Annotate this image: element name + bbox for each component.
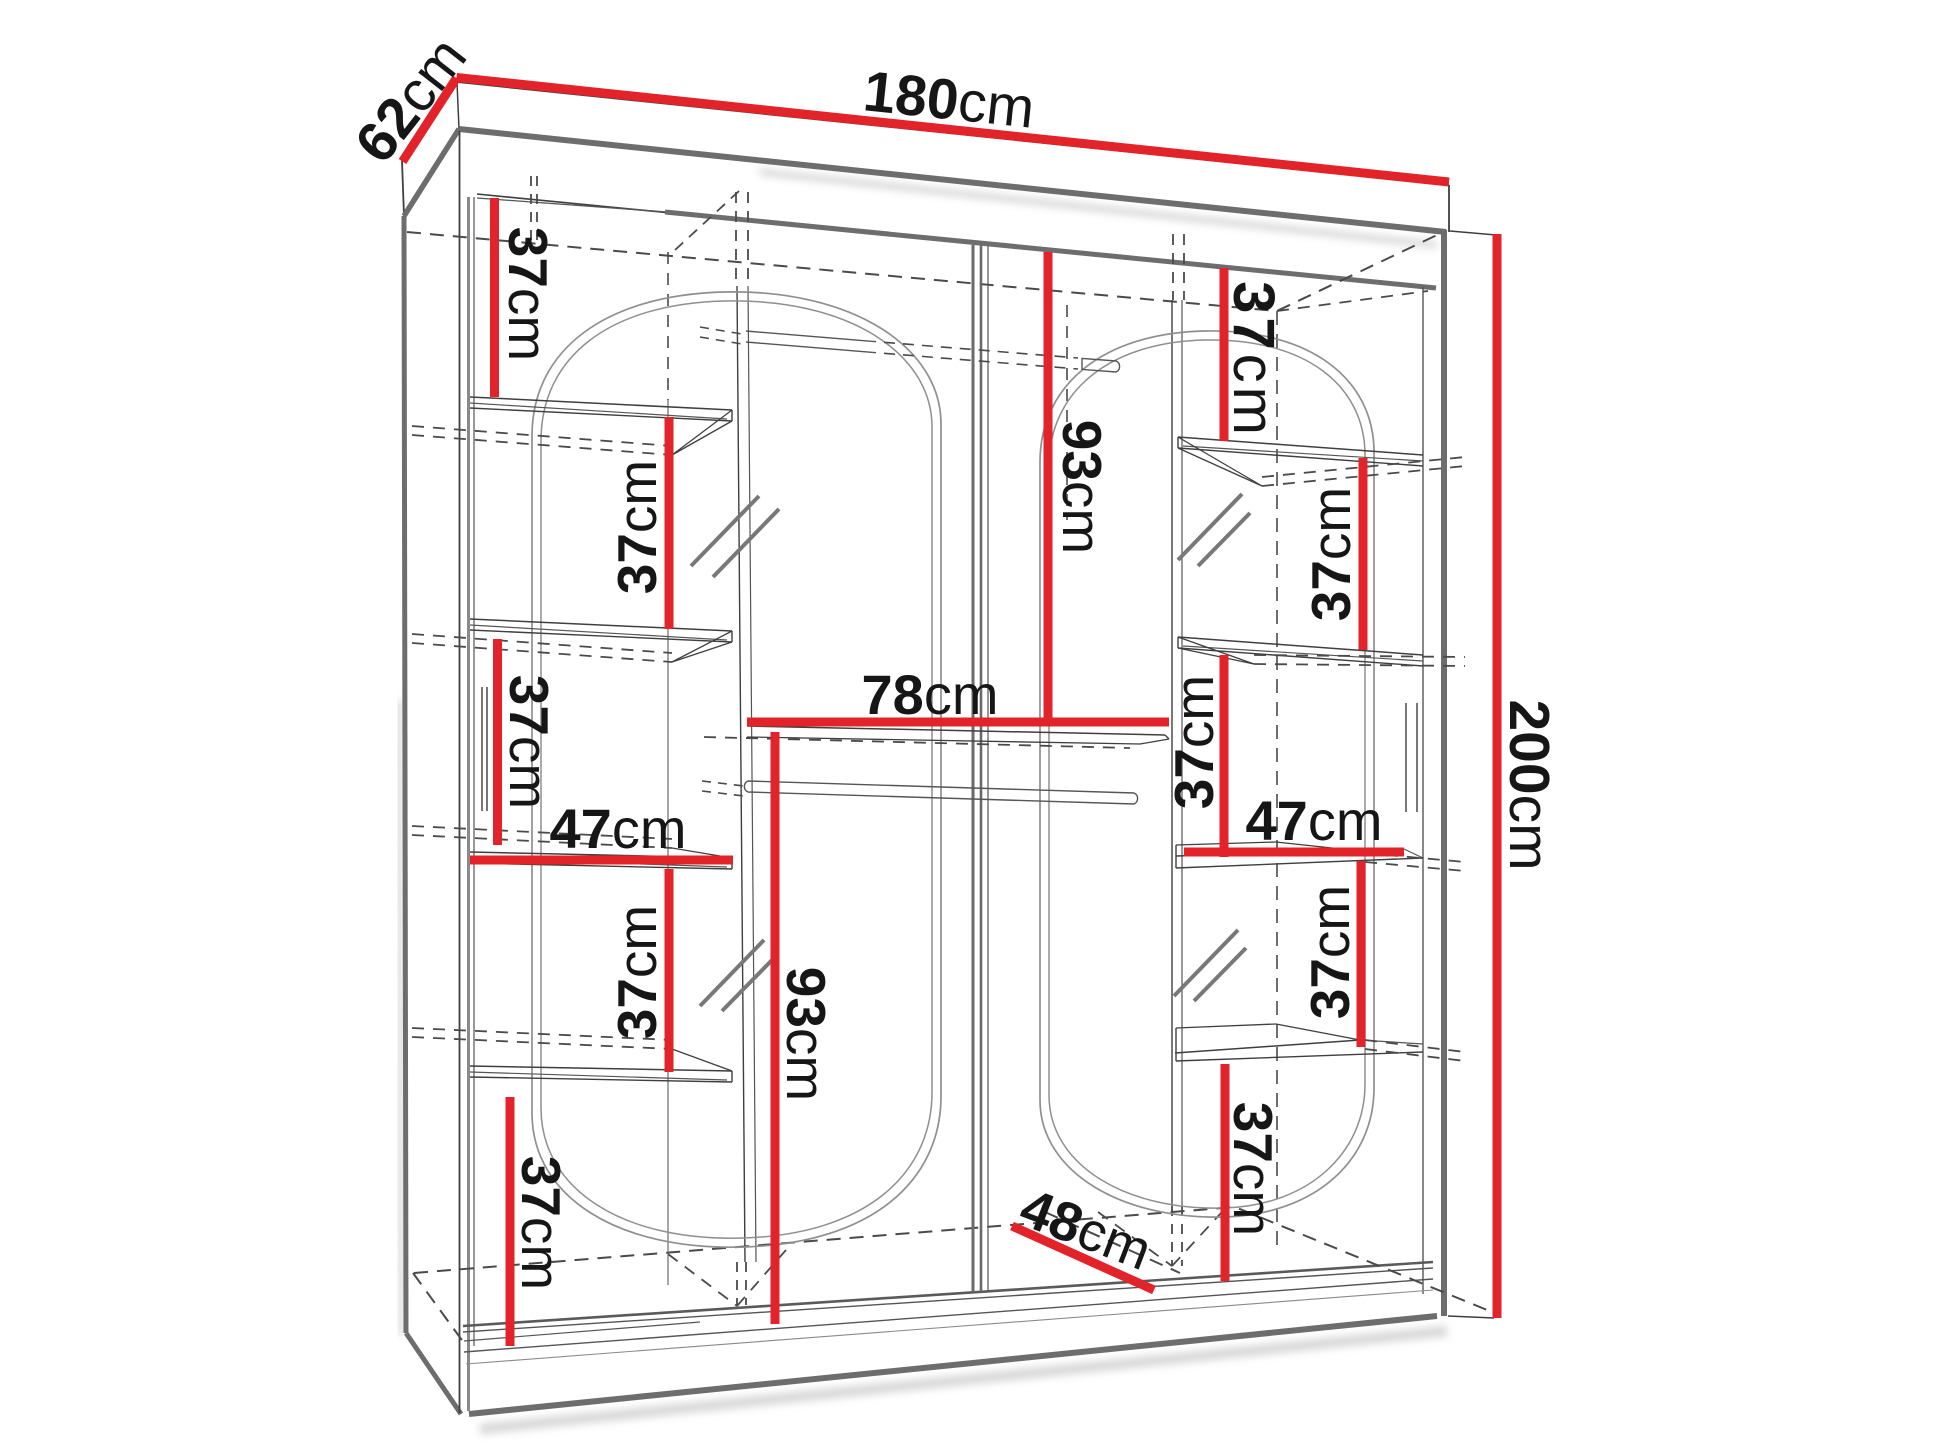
svg-text:37cm: 37cm	[1163, 675, 1225, 810]
svg-text:37cm: 37cm	[1300, 487, 1362, 622]
svg-text:37cm: 37cm	[497, 227, 559, 362]
svg-text:47cm: 47cm	[550, 797, 687, 860]
svg-text:37cm: 37cm	[498, 675, 560, 810]
svg-text:37cm: 37cm	[1222, 1102, 1284, 1237]
svg-text:37cm: 37cm	[606, 460, 668, 595]
svg-text:37cm: 37cm	[606, 905, 668, 1040]
svg-text:37cm: 37cm	[1299, 885, 1361, 1020]
svg-text:200cm: 200cm	[1497, 699, 1561, 870]
svg-text:93cm: 93cm	[1051, 420, 1113, 555]
svg-text:47cm: 47cm	[1246, 789, 1383, 852]
svg-text:37cm: 37cm	[510, 1156, 572, 1291]
svg-text:37cm: 37cm	[1222, 281, 1287, 439]
svg-text:78cm: 78cm	[862, 663, 999, 726]
svg-text:93cm: 93cm	[775, 967, 837, 1102]
